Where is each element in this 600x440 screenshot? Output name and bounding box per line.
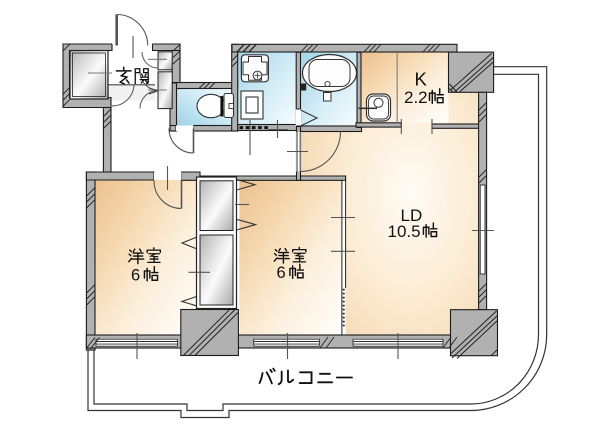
svg-text:6: 6 [131,267,140,285]
svg-text:6: 6 [277,264,286,282]
svg-text:10.5: 10.5 [388,222,421,241]
svg-text:2.2: 2.2 [404,88,428,107]
svg-text:K: K [415,69,428,90]
